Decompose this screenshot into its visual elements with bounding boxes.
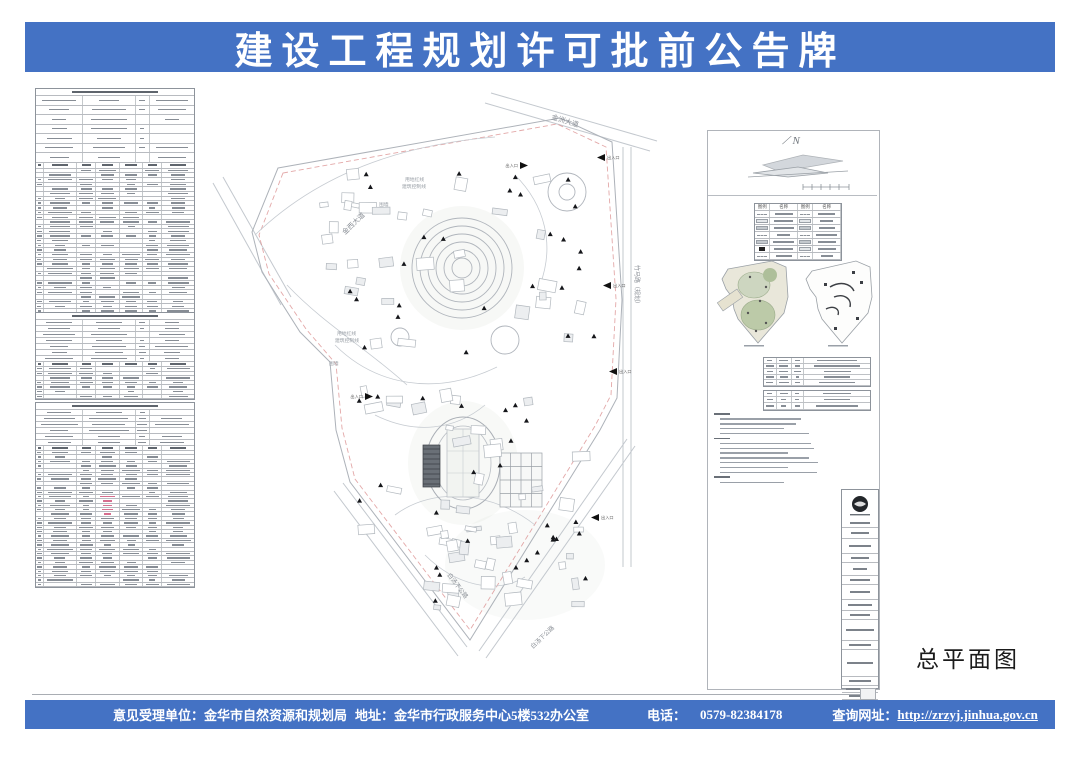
table-cell [143,385,162,389]
tree-marker-icon [395,314,400,319]
legend-cell: 图例 [798,204,813,210]
table-cell [120,201,144,205]
mini-table-cell [764,391,777,396]
table-cell [120,578,144,581]
cell-text-bar [48,373,71,374]
cell-text-bar [780,393,788,394]
cell-text-bar [171,202,186,203]
table-cell [77,244,96,248]
cell-text-bar [48,442,71,443]
legend-name-bar [819,227,835,228]
cell-text-bar [123,549,139,550]
cell-text-bar [81,452,90,453]
building-footprint [440,388,453,402]
table-cell [96,163,120,168]
cell-text-bar [103,500,112,501]
cell-text-bar [52,217,68,218]
title-block-row [842,554,878,563]
building-footprint [329,222,338,233]
cell-text-bar [169,465,188,466]
table-cell [77,565,96,568]
table-cell [162,220,194,224]
cell-text-bar [93,147,125,148]
entrance-arrow-icon [597,154,605,161]
table-cell [77,290,96,294]
cell-text-bar [38,575,41,576]
building-footprint [533,174,551,185]
cell-text-bar [103,557,113,558]
table-cell [44,187,77,191]
cell-text-bar [167,584,190,585]
cell-text-bar [167,557,190,558]
table-cell [77,390,96,394]
table-cell [143,304,162,308]
table-cell [83,356,135,361]
table-row [36,313,194,320]
tree-marker-icon [591,334,596,339]
table-cell [120,178,144,182]
table-cell [120,281,144,285]
cell-text-bar [125,212,138,213]
cell-text-bar [171,259,185,260]
table-cell [44,570,77,573]
table-cell [96,244,120,248]
cell-text-bar [173,531,183,532]
cell-text-bar [51,478,69,479]
cell-text-bar [37,478,41,479]
table-cell [120,543,144,546]
cell-text-bar [780,376,788,377]
cell-text-bar [51,513,69,514]
table-cell [77,258,96,262]
legend-symbol [757,235,767,236]
table-cell [44,455,77,458]
cell-text-bar [48,328,70,329]
cell-text-bar [104,544,111,545]
table-row [36,403,194,410]
table-cell [96,234,120,238]
table-cell [143,258,162,262]
table-cell [162,367,194,371]
cell-text-bar [169,292,186,293]
cell-text-bar [101,562,114,563]
table-cell [162,234,194,238]
table-cell [120,220,144,224]
table-cell [36,300,44,304]
table-cell [162,508,194,511]
cell-text-bar [38,273,40,274]
cell-text-bar [79,193,93,194]
grandstand [423,445,440,487]
title-block-text-bar [849,644,871,645]
cell-text-bar [139,418,146,419]
cell-text-bar [102,377,113,378]
cell-text-bar [100,268,116,269]
cell-text-bar [37,240,41,241]
cell-text-bar [170,188,185,189]
legend-cell [813,239,841,245]
table-cell [143,390,162,394]
table-cell [162,385,194,389]
table-cell [44,183,77,187]
cell-text-bar [125,447,136,448]
cell-text-bar [45,358,73,359]
legend-symbol [757,214,767,215]
cell-text-bar [126,527,137,528]
table-cell [96,197,120,201]
cell-text-bar [48,212,72,213]
cell-text-bar [147,202,158,203]
table-cell [44,482,77,485]
table-cell [96,395,120,399]
table-cell [96,473,120,476]
cell-text-bar [137,430,147,431]
table-cell [120,526,144,529]
table-cell [143,192,162,196]
table-cell [143,499,162,502]
cell-text-bar [80,259,92,260]
table-cell [96,464,120,467]
cell-text-bar [38,579,42,580]
mini-table-cell [792,403,805,408]
table-cell [77,556,96,559]
cell-text-bar [41,424,78,425]
site-plan-svg: 金洲大道 金西大道 竹马路（规划） 白汤下公路 白汤下公路 用地红线 建筑控制线… [195,85,705,695]
cell-text-bar [82,202,90,203]
table-cell [44,173,77,177]
table-cell [120,197,144,201]
cell-text-bar [80,287,92,288]
cell-text-bar [100,259,115,260]
cell-text-bar [82,540,91,541]
table-cell [96,477,120,480]
legend-symbol [800,235,810,236]
table-cell [143,512,162,515]
cell-text-bar [146,535,158,536]
cell-text-bar [49,368,72,369]
legend-cell [770,218,798,224]
cell-text-bar [171,509,185,510]
table-cell [36,440,83,445]
table-cell [44,376,77,380]
table-cell [36,477,44,480]
table-cell [150,350,194,355]
cell-text-bar [37,487,41,488]
cell-text-bar [140,138,144,139]
table-cell [36,416,83,421]
cell-text-bar [171,235,185,236]
table-cell [36,153,83,162]
legend-cell [798,239,813,245]
building-footprint [321,234,333,244]
title-block-row [842,563,878,576]
tree-marker-icon [513,403,518,408]
table-cell [162,169,194,173]
cell-text-bar [79,179,93,180]
title-block-row [842,641,878,650]
cell-text-bar [168,500,188,501]
table-cell [162,390,194,394]
table-cell [96,267,120,271]
table-cell [143,539,162,542]
table-cell [77,561,96,564]
cell-text-bar [55,391,65,392]
footer-agency: 意见受理单位：金华市自然资源和规划局 [113,705,347,724]
cell-text-bar [125,518,136,519]
table-cell [44,225,77,229]
table-cell [120,187,144,191]
cell-text-bar [38,245,40,246]
cell-text-bar [81,584,92,585]
cell-text-bar [149,235,156,236]
table-cell [143,451,162,454]
cell-text-bar [147,386,159,387]
building-footprint [320,202,329,208]
cell-text-bar [102,447,113,448]
cell-text-bar [81,188,92,189]
title-block-row [842,650,878,677]
entrance-label: 出入口 [350,393,363,400]
cell-text-bar [148,447,157,448]
building-footprint [481,576,495,589]
table-cell [120,173,144,177]
sheet-frame-line [32,694,862,695]
cell-text-bar [795,405,799,406]
title-block-row [842,539,878,554]
table-cell [44,201,77,205]
table-cell [96,295,120,299]
cell-text-bar [45,147,73,148]
table-cell [36,552,44,555]
page-title: 建设工程规划许可批前公告牌 [234,20,845,75]
table-cell [150,144,194,153]
table-cell [44,385,77,389]
cell-text-bar [101,518,114,519]
cell-text-bar [148,164,157,165]
cell-text-bar [796,376,800,377]
table-cell [44,372,77,376]
cell-text-bar [37,292,42,293]
cell-text-bar [37,531,42,532]
table-cell [120,258,144,262]
cell-text-bar [102,179,114,180]
table-cell [83,326,135,331]
cell-text-bar [766,382,773,383]
table-cell [83,134,135,143]
table-cell [136,134,150,143]
cell-text-bar [794,371,802,372]
table-cell [143,244,162,248]
tree-marker-icon [433,598,438,603]
notes-heading-bar [714,476,730,478]
table-cell [143,281,162,285]
table-cell [136,115,150,124]
table-cell [44,526,77,529]
cell-text-bar [124,513,139,514]
cell-text-bar [172,287,185,288]
tree-marker-icon [503,408,508,413]
table-cell [143,300,162,304]
cell-text-bar [50,377,70,378]
table-cell [77,517,96,520]
table-cell [36,229,44,233]
road-label-baitang-2: 白汤下公路 [529,624,556,651]
cell-text-bar [38,584,42,585]
mini-table-cell [777,380,792,385]
mini-table-cell [792,369,805,374]
cell-text-bar [95,352,123,353]
cell-text-bar [50,386,69,387]
cell-text-bar [37,263,41,264]
table-cell [77,197,96,201]
table-cell [44,473,77,476]
cell-text-bar [38,474,40,475]
building-footprint [346,168,359,180]
cell-text-bar [37,282,42,283]
table-cell [162,539,194,542]
table-cell [143,534,162,537]
cell-text-bar [82,386,91,387]
table-cell [136,350,150,355]
table-cell [36,583,44,586]
indicator-table [35,402,195,588]
panel-divider [708,195,877,196]
cell-text-bar [80,396,93,397]
cell-text-bar [102,456,112,457]
building-footprint [508,522,518,534]
building-footprint [411,402,426,415]
table-cell [162,574,194,577]
table-cell [96,570,120,573]
table-cell [96,482,120,485]
cell-text-bar [168,231,189,232]
cell-text-bar [38,562,41,563]
building-footprint [559,562,566,570]
building-footprint [572,451,590,461]
cell-text-bar [104,513,112,514]
building-footprint [344,200,352,210]
table-cell [44,267,77,271]
table-cell [77,372,96,376]
table-cell [36,187,44,191]
table-cell [36,385,44,389]
cell-text-bar [52,240,69,241]
cell-text-bar [102,363,113,364]
building-footprint [454,177,468,192]
table-cell [136,428,150,433]
cell-text-bar [49,496,71,497]
indicator-table [35,312,195,400]
table-cell [36,574,44,577]
building-footprint [572,601,585,607]
cell-text-bar [173,301,183,302]
table-cell [96,390,120,394]
entrance-arrow-icon [609,368,617,375]
table-cell [36,225,44,229]
cell-text-bar [80,549,92,550]
cell-text-bar [173,391,183,392]
table-cell [44,272,77,276]
cell-text-bar [147,184,159,185]
footer-phone: 0579-82384178 [700,707,782,723]
table-cell [162,578,194,581]
table-cell [36,390,44,394]
table-cell [77,239,96,243]
cell-text-bar [38,207,41,208]
table-cell [77,473,96,476]
building-footprint [372,207,390,214]
table-cell [96,534,120,537]
cell-text-bar [100,221,114,222]
table-cell [83,434,135,439]
cell-text-bar [165,119,179,120]
cell-text-bar [124,396,138,397]
cell-text-bar [79,373,93,374]
cell-text-bar [79,527,92,528]
table-cell [77,201,96,205]
table-cell [162,381,194,385]
cell-text-bar [148,231,157,232]
mini-table-cell [804,369,870,374]
legend-name-bar [774,227,794,228]
table-cell [162,473,194,476]
legend-cell [755,211,770,217]
table-cell [77,451,96,454]
cell-text-bar [102,188,113,189]
legend-cell [755,218,770,224]
table-cell [143,561,162,564]
title-block [841,489,879,689]
table-cell [136,440,150,445]
cell-text-bar [127,575,135,576]
table-cell [36,304,44,308]
mini-table-cell [777,375,792,380]
table-cell [162,570,194,573]
table-cell [77,508,96,511]
table-cell [136,125,150,134]
table-cell [143,491,162,494]
table-cell [143,178,162,182]
cell-text-bar [779,371,788,372]
legend-name-bar [774,248,793,249]
table-cell [96,578,120,581]
table-cell [36,281,44,285]
cell-text-bar [149,509,156,510]
cell-text-bar [51,553,69,554]
table-row [36,134,194,144]
footer-website-link[interactable]: http://zrzyj.jinhua.gov.cn [897,707,1037,723]
cell-text-bar [38,179,41,180]
table-cell [143,376,162,380]
table-cell [44,561,77,564]
table-cell [44,460,77,463]
cell-text-bar [128,391,135,392]
cell-text-bar [79,500,93,501]
building-footprint [519,494,526,500]
cell-text-bar [101,535,115,536]
cell-text-bar [37,368,42,369]
cell-text-bar [53,259,68,260]
mini-table-cell [764,375,777,380]
table-cell [77,469,96,472]
cell-text-bar [102,492,114,493]
table-cell [162,183,194,187]
cell-text-bar [38,456,41,457]
cell-text-bar [171,174,186,175]
mini-table-cell [792,397,805,402]
table-cell [44,197,77,201]
table-cell [162,486,194,489]
